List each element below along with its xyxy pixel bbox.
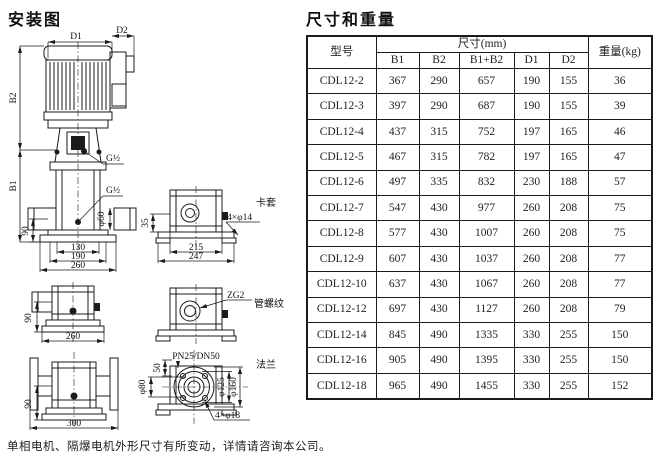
b2-cell: 290	[419, 69, 459, 94]
b1b2-cell: 832	[459, 170, 514, 195]
flange-conn-label: PN25/DN50	[172, 352, 220, 362]
dim-phi60-label: φ60	[97, 211, 107, 226]
b2-cell: 490	[419, 322, 459, 347]
table-row: CDL12-8 577 430 1007 260 208 75	[307, 221, 652, 246]
dim-phi125-label: φ125	[217, 377, 227, 397]
dim-260-main-label: 260	[71, 261, 86, 271]
port-g-half-lower-label: G½	[106, 185, 120, 196]
b2-cell: 290	[419, 94, 459, 119]
clamp-variant-label: 卡套	[256, 196, 276, 209]
flange-variant-label: 法兰	[256, 358, 276, 371]
dim-90-side-c-label: 90	[24, 399, 34, 409]
b1-cell: 547	[376, 195, 419, 220]
col-header-b1: B1	[376, 53, 419, 69]
d2-cell: 165	[549, 145, 588, 170]
model-cell: CDL12-10	[307, 272, 376, 297]
b2-cell: 430	[419, 246, 459, 271]
d1-cell: 330	[514, 373, 549, 399]
d2-cell: 208	[549, 272, 588, 297]
table-row: CDL12-4 437 315 752 197 165 46	[307, 119, 652, 144]
model-cell: CDL12-14	[307, 322, 376, 347]
b1-cell: 637	[376, 272, 419, 297]
dim-50-label: 50	[153, 363, 163, 373]
dim-phi80-label: φ80	[138, 379, 148, 394]
d1-cell: 260	[514, 221, 549, 246]
flange-holes-label: 4×φ18	[215, 411, 240, 421]
d1-cell: 260	[514, 297, 549, 322]
table-row: CDL12-6 497 335 832 230 188 57	[307, 170, 652, 195]
side-view-thread-variant: 90 260	[24, 282, 104, 343]
weight-cell: 47	[588, 145, 652, 170]
d1-cell: 190	[514, 69, 549, 94]
thread-variant-label: 管螺纹	[254, 297, 284, 310]
d1-cell: 330	[514, 322, 549, 347]
col-header-d2: D2	[549, 53, 588, 69]
table-row: CDL12-10 637 430 1067 260 208 77	[307, 272, 652, 297]
dim-phi160-label: φ160	[229, 377, 239, 397]
b1-cell: 467	[376, 145, 419, 170]
table-row: CDL12-3 397 290 687 190 155 39	[307, 94, 652, 119]
b1-cell: 367	[376, 69, 419, 94]
weight-cell: 152	[588, 373, 652, 399]
b1b2-cell: 1007	[459, 221, 514, 246]
table-row: CDL12-9 607 430 1037 260 208 77	[307, 246, 652, 271]
model-cell: CDL12-8	[307, 221, 376, 246]
b1-cell: 577	[376, 221, 419, 246]
d1-cell: 190	[514, 94, 549, 119]
weight-cell: 77	[588, 272, 652, 297]
b1-cell: 437	[376, 119, 419, 144]
weight-cell: 79	[588, 297, 652, 322]
b1-cell: 607	[376, 246, 419, 271]
b1b2-cell: 782	[459, 145, 514, 170]
side-view-flange-variant: 90 300	[24, 352, 118, 430]
d2-cell: 155	[549, 94, 588, 119]
b1b2-cell: 977	[459, 195, 514, 220]
dim-247-label: 247	[189, 252, 204, 262]
d1-cell: 260	[514, 195, 549, 220]
d1-cell: 230	[514, 170, 549, 195]
weight-cell: 77	[588, 246, 652, 271]
b1b2-cell: 1335	[459, 322, 514, 347]
d2-cell: 255	[549, 373, 588, 399]
d2-cell: 165	[549, 119, 588, 144]
col-header-size-group: 尺寸(mm)	[376, 36, 588, 53]
d1-cell: 260	[514, 272, 549, 297]
model-cell: CDL12-2	[307, 69, 376, 94]
b2-cell: 430	[419, 272, 459, 297]
d2-cell: 208	[549, 246, 588, 271]
weight-cell: 39	[588, 94, 652, 119]
dimensions-table: 型号 尺寸(mm) 重量(kg) B1 B2 B1+B2 D1 D2 CDL12…	[306, 35, 653, 400]
col-header-b1b2: B1+B2	[459, 53, 514, 69]
weight-cell: 46	[588, 119, 652, 144]
clamp-holes-label: 4×φ14	[227, 213, 252, 223]
model-cell: CDL12-7	[307, 195, 376, 220]
table-row: CDL12-14 845 490 1335 330 255 150	[307, 322, 652, 347]
model-cell: CDL12-4	[307, 119, 376, 144]
col-header-b2: B2	[419, 53, 459, 69]
weight-cell: 75	[588, 221, 652, 246]
b1b2-cell: 1127	[459, 297, 514, 322]
b1b2-cell: 687	[459, 94, 514, 119]
d2-cell: 208	[549, 297, 588, 322]
weight-cell: 150	[588, 348, 652, 373]
dim-d1-label: D1	[70, 32, 82, 42]
b1b2-cell: 657	[459, 69, 514, 94]
b1-cell: 905	[376, 348, 419, 373]
d1-cell: 197	[514, 145, 549, 170]
dim-35-label: 35	[141, 218, 151, 228]
b1-cell: 497	[376, 170, 419, 195]
b1-cell: 397	[376, 94, 419, 119]
d2-cell: 255	[549, 348, 588, 373]
dim-d2-label: D2	[116, 26, 128, 36]
b2-cell: 430	[419, 221, 459, 246]
flange-connection-view: PN25/DN50 50 φ80 φ125 φ160 4×φ18	[138, 350, 276, 424]
model-cell: CDL12-6	[307, 170, 376, 195]
model-cell: CDL12-3	[307, 94, 376, 119]
dimensions-table-title: 尺寸和重量	[306, 6, 396, 30]
thread-conn-label: ZG2	[227, 291, 245, 301]
b1b2-cell: 752	[459, 119, 514, 144]
b1b2-cell: 1037	[459, 246, 514, 271]
model-cell: CDL12-5	[307, 145, 376, 170]
d1-cell: 260	[514, 246, 549, 271]
col-header-weight: 重量(kg)	[588, 36, 652, 69]
port-g-half-upper-label: G½	[106, 153, 120, 164]
d1-cell: 197	[514, 119, 549, 144]
dim-300-label: 300	[67, 419, 82, 429]
model-cell: CDL12-12	[307, 297, 376, 322]
page: { "titles": { "left": "安装图", "right": "尺…	[0, 0, 657, 460]
thread-connection-view: ZG2 管螺纹	[156, 284, 284, 344]
b1-cell: 697	[376, 297, 419, 322]
b2-cell: 315	[419, 145, 459, 170]
table-row: CDL12-2 367 290 657 190 155 36	[307, 69, 652, 94]
b1-cell: 845	[376, 322, 419, 347]
model-cell: CDL12-9	[307, 246, 376, 271]
b2-cell: 490	[419, 373, 459, 399]
b1b2-cell: 1455	[459, 373, 514, 399]
col-header-d1: D1	[514, 53, 549, 69]
dim-90-main-label: 90	[21, 226, 31, 236]
table-body: CDL12-2 367 290 657 190 155 36 CDL12-3 3…	[307, 69, 652, 400]
dim-90-side-b-label: 90	[24, 313, 34, 323]
b2-cell: 430	[419, 195, 459, 220]
d1-cell: 330	[514, 348, 549, 373]
dim-b2-label: B2	[9, 92, 19, 103]
b1-cell: 965	[376, 373, 419, 399]
weight-cell: 57	[588, 170, 652, 195]
table-row: CDL12-5 467 315 782 197 165 47	[307, 145, 652, 170]
table-row: CDL12-12 697 430 1127 260 208 79	[307, 297, 652, 322]
d2-cell: 255	[549, 322, 588, 347]
d2-cell: 208	[549, 195, 588, 220]
weight-cell: 36	[588, 69, 652, 94]
col-header-model: 型号	[307, 36, 376, 69]
table-header-row-1: 型号 尺寸(mm) 重量(kg)	[307, 36, 652, 53]
table-row: CDL12-7 547 430 977 260 208 75	[307, 195, 652, 220]
dim-b1-label: B1	[9, 180, 19, 191]
d2-cell: 208	[549, 221, 588, 246]
b2-cell: 430	[419, 297, 459, 322]
b2-cell: 315	[419, 119, 459, 144]
b2-cell: 490	[419, 348, 459, 373]
b1b2-cell: 1067	[459, 272, 514, 297]
dim-260-side-label: 260	[66, 332, 81, 342]
main-pump-front-view: D1 D2 B2 B1 G½ G½	[9, 26, 136, 272]
installation-diagram: D1 D2 B2 B1 G½ G½	[0, 22, 300, 438]
model-cell: CDL12-18	[307, 373, 376, 399]
d2-cell: 155	[549, 69, 588, 94]
b2-cell: 335	[419, 170, 459, 195]
model-cell: CDL12-16	[307, 348, 376, 373]
table-row: CDL12-18 965 490 1455 330 255 152	[307, 373, 652, 399]
weight-cell: 150	[588, 322, 652, 347]
table-row: CDL12-16 905 490 1395 330 255 150	[307, 348, 652, 373]
footnote: 单相电机、隔爆电机外形尺寸有所变动，详情请咨询本公司。	[7, 438, 331, 454]
b1b2-cell: 1395	[459, 348, 514, 373]
d2-cell: 188	[549, 170, 588, 195]
weight-cell: 75	[588, 195, 652, 220]
clamp-connection-view: 35 4×φ14 215 247 卡套	[141, 186, 276, 263]
